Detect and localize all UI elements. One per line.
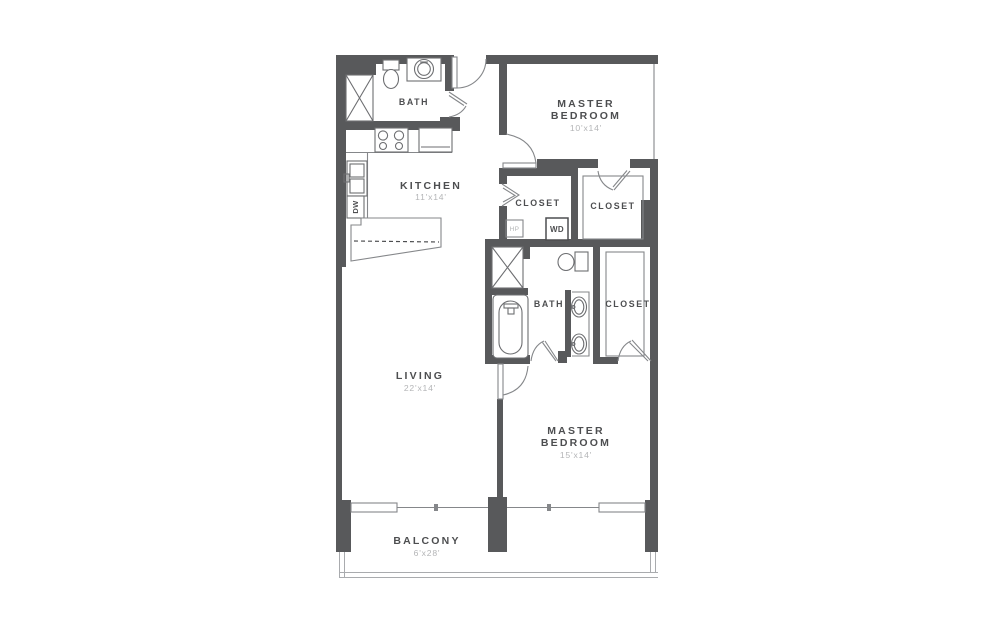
- master1-door: [503, 134, 536, 168]
- heat-pump-label: HP: [510, 226, 520, 233]
- bath-top-toilet-fixture: [383, 60, 399, 89]
- dishwasher-label: DW: [351, 200, 360, 214]
- bath-main-toilet-fixture: [558, 252, 588, 271]
- balcony-railing: [339, 552, 658, 578]
- closet-mb2-door: [618, 340, 651, 361]
- bath-main-door: [531, 341, 558, 361]
- balcony-label: BALCONY: [393, 535, 460, 547]
- bath-top-door: [449, 92, 467, 117]
- window-tick: [434, 504, 438, 511]
- entry-door: [452, 57, 486, 88]
- sliding-door-living: [351, 503, 397, 512]
- sliding-door-master2: [599, 503, 645, 512]
- living-label: LIVING: [396, 370, 444, 382]
- master2-dims: 15'x14': [560, 450, 592, 460]
- floorplan-drawing: DW HP WD: [0, 0, 998, 626]
- master1-label-line2: BEDROOM: [551, 110, 621, 122]
- bath-main-label: BATH: [534, 299, 564, 309]
- tub-fixture: [493, 295, 528, 358]
- master2-door: [498, 364, 528, 399]
- hp-box: HP: [506, 220, 523, 237]
- bath-top-label: BATH: [399, 97, 429, 107]
- master2-label-line1: MASTER: [547, 425, 605, 437]
- kitchen-dims: 11'x14': [415, 192, 447, 202]
- washer-dryer-label: WD: [550, 225, 564, 234]
- kitchen-sink-fixture: [344, 161, 367, 196]
- storage-xbox: [346, 75, 373, 121]
- shower-xbox: [492, 247, 523, 288]
- closet-hall-label: CLOSET: [515, 198, 560, 208]
- master1-dims: 10'x14': [570, 123, 602, 133]
- master2-label-line2: BEDROOM: [541, 437, 611, 449]
- balcony-dims: 6'x28': [414, 548, 441, 558]
- living-dims: 22'x14': [404, 383, 436, 393]
- floorplan-canvas: DW HP WD: [0, 0, 998, 626]
- wd-box: WD: [546, 218, 568, 240]
- stove-fixture: [375, 128, 408, 152]
- fridge-fixture: [419, 128, 452, 152]
- master1-label-line1: MASTER: [557, 98, 615, 110]
- island-counter: [351, 218, 441, 261]
- window-tick: [547, 504, 551, 511]
- bath-top-sink-fixture: [407, 58, 441, 81]
- dishwasher-box: DW: [347, 196, 364, 218]
- vanity-sinks-fixture: [572, 297, 587, 354]
- kitchen-label: KITCHEN: [400, 180, 462, 192]
- closet-mb2-label: CLOSET: [605, 299, 650, 309]
- closet-mb1-label: CLOSET: [590, 201, 635, 211]
- closet-mb1-door: [598, 171, 630, 191]
